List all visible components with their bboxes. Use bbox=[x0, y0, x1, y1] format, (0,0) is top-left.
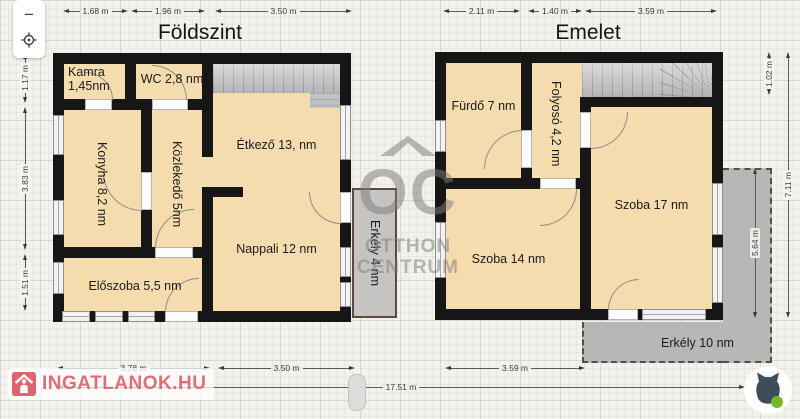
dim-upper-top-2: 1.40 m bbox=[528, 6, 582, 16]
room-label-folyoso: Folyosó 4,2 nm bbox=[549, 70, 563, 178]
watermark-line2: CENTRUM bbox=[338, 258, 478, 277]
window bbox=[53, 200, 64, 235]
staircase-ground bbox=[213, 64, 340, 93]
room-label-furdo: Fürdő 7 nm bbox=[446, 99, 521, 113]
watermark-initials: OC bbox=[348, 160, 468, 224]
dim-ground-top-3: 3.50 m bbox=[215, 6, 352, 16]
window bbox=[128, 311, 155, 322]
dim-left-1: 1.17 m bbox=[18, 53, 32, 103]
dim-upper-top-3: 3.59 m bbox=[585, 6, 717, 16]
crosshair-icon bbox=[21, 33, 37, 52]
window bbox=[435, 120, 446, 152]
door-opening bbox=[141, 172, 152, 210]
window bbox=[62, 311, 90, 322]
map-toolbar: − bbox=[13, 0, 45, 58]
zoom-out-button[interactable]: − bbox=[15, 3, 43, 27]
staircase-ground-landing bbox=[310, 93, 340, 108]
dim-right-small: 1.02 m bbox=[762, 52, 776, 95]
door-opening bbox=[540, 178, 576, 189]
window bbox=[712, 247, 723, 303]
floorplan-viewer: { "toolbar": { "zoom_out_label": "−" }, … bbox=[0, 0, 800, 409]
window bbox=[340, 105, 351, 160]
door-opening bbox=[580, 112, 591, 148]
wall bbox=[580, 97, 712, 107]
room-label-kozlekedo: Közlekedő 5nm bbox=[170, 118, 184, 250]
staircase-upper-winder bbox=[660, 63, 712, 97]
window bbox=[340, 282, 351, 307]
window bbox=[642, 309, 706, 320]
cat-mascot-button[interactable] bbox=[744, 366, 792, 414]
dim-bottom-upper-1: 3.59 m bbox=[445, 363, 585, 373]
panel-handle bbox=[348, 374, 366, 411]
door-opening bbox=[85, 99, 112, 110]
room-label-szoba17: Szoba 17 nm bbox=[591, 198, 712, 212]
watermark-line1: OTTHON bbox=[338, 237, 478, 256]
door-opening bbox=[608, 309, 638, 320]
house-icon bbox=[12, 372, 36, 396]
window bbox=[712, 183, 723, 235]
dim-ground-top-1: 1.68 m bbox=[63, 6, 128, 16]
room-label-eloszoba: Előszoba 5,5 nm bbox=[70, 279, 200, 293]
room-label-erkely-upper: Erkély 10 nm bbox=[635, 336, 760, 350]
upper-floor-title: Emelet bbox=[508, 21, 668, 45]
window bbox=[53, 262, 64, 294]
ingatlanok-logo: INGATLANOK.HU bbox=[8, 368, 214, 400]
ingatlanok-logo-text: INGATLANOK.HU bbox=[42, 373, 206, 395]
dim-ground-top-2: 1.96 m bbox=[131, 6, 205, 16]
watermark-roof-icon bbox=[380, 136, 436, 156]
wall bbox=[213, 187, 243, 197]
dim-left-3: 1.51 m bbox=[18, 254, 32, 311]
dim-left-2: 3.83 m bbox=[18, 107, 32, 250]
dim-upper-top-1: 2.11 m bbox=[443, 6, 520, 16]
room-label-konyha: Konyha 8,2 nm bbox=[95, 128, 109, 240]
room-label-wc: WC 2,8 nm bbox=[134, 72, 210, 86]
room-label-etkezo: Étkező 13, nm bbox=[213, 138, 340, 152]
door-opening bbox=[165, 311, 198, 322]
dim-right-full: 7.11 m bbox=[781, 52, 795, 318]
door-opening bbox=[152, 99, 188, 110]
locate-button[interactable] bbox=[15, 31, 43, 55]
room-label-kamra: Kamra 1,45nm bbox=[68, 66, 126, 94]
room-label-nappali: Nappali 12 nm bbox=[213, 242, 340, 256]
window bbox=[95, 311, 123, 322]
dim-right-mid: 5.64 m bbox=[748, 168, 762, 318]
ground-floor-title: Földszint bbox=[120, 21, 280, 45]
window bbox=[53, 115, 64, 155]
dim-bottom-ground-2: 3.50 m bbox=[218, 363, 355, 373]
